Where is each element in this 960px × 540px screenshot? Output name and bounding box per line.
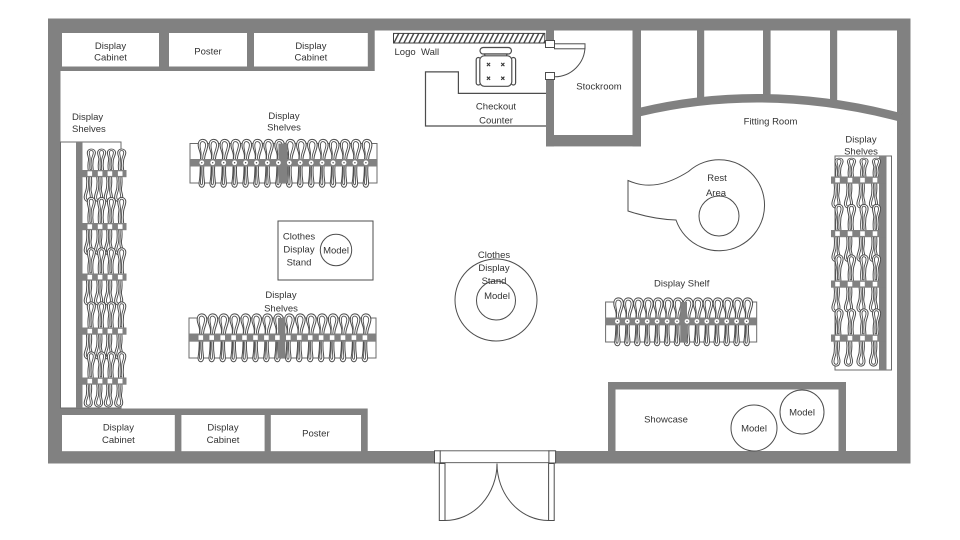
- svg-text:Display: Display: [265, 290, 296, 301]
- svg-text:Model: Model: [484, 291, 510, 302]
- svg-text:Counter: Counter: [479, 115, 513, 126]
- svg-text:Poster: Poster: [194, 47, 221, 58]
- svg-text:Display: Display: [72, 112, 103, 123]
- svg-text:Wall: Wall: [421, 47, 439, 58]
- svg-text:Poster: Poster: [302, 428, 329, 439]
- svg-text:Cabinet: Cabinet: [295, 53, 328, 64]
- svg-text:Clothes: Clothes: [283, 231, 315, 242]
- svg-text:Model: Model: [789, 407, 815, 418]
- svg-text:Rest: Rest: [707, 173, 727, 184]
- svg-text:Display: Display: [845, 134, 876, 145]
- svg-text:Showcase: Showcase: [644, 414, 688, 425]
- svg-text:Shelves: Shelves: [267, 123, 301, 134]
- svg-text:Cabinet: Cabinet: [102, 435, 135, 446]
- svg-text:Area: Area: [706, 188, 727, 199]
- svg-text:Display: Display: [207, 422, 238, 433]
- svg-text:Cabinet: Cabinet: [207, 435, 240, 446]
- svg-text:Clothes: Clothes: [478, 250, 510, 261]
- svg-text:Display: Display: [295, 41, 326, 52]
- svg-text:Checkout: Checkout: [476, 101, 516, 112]
- svg-text:Display Shelf: Display Shelf: [654, 278, 710, 289]
- svg-text:Stand: Stand: [287, 257, 312, 268]
- svg-text:Display: Display: [95, 41, 126, 52]
- svg-text:Display: Display: [268, 111, 299, 122]
- svg-text:Model: Model: [323, 245, 349, 256]
- svg-text:Shelves: Shelves: [264, 304, 298, 315]
- svg-text:Shelves: Shelves: [72, 124, 106, 135]
- svg-text:Display: Display: [103, 422, 134, 433]
- svg-text:Display: Display: [283, 244, 314, 255]
- svg-text:Display: Display: [478, 263, 509, 274]
- svg-text:Stand: Stand: [482, 276, 507, 287]
- svg-text:Model: Model: [741, 423, 767, 434]
- svg-text:Fitting Room: Fitting Room: [744, 116, 798, 127]
- svg-text:Stockroom: Stockroom: [576, 81, 621, 92]
- svg-text:Logo: Logo: [395, 47, 416, 58]
- svg-text:Cabinet: Cabinet: [94, 53, 127, 64]
